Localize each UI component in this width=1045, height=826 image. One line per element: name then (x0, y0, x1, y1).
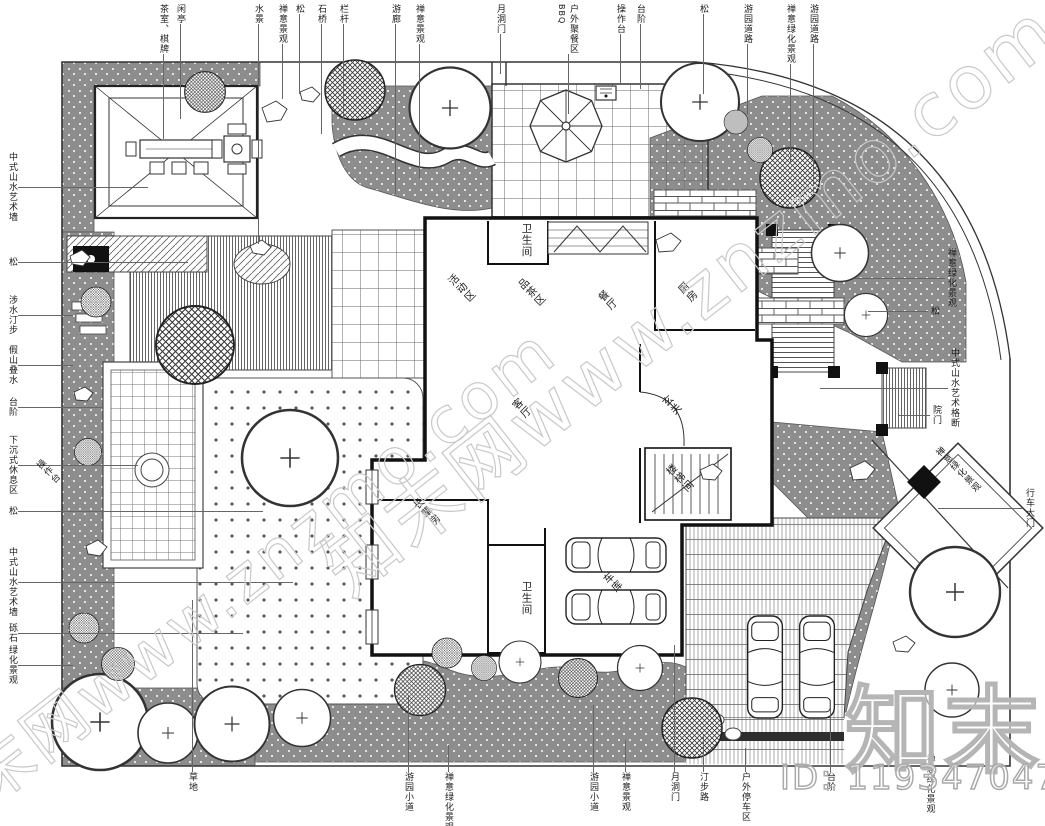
top-label-corridor: 游廊 (389, 4, 401, 194)
top-label-zen2: 禅意景观 (413, 4, 425, 179)
top-label-railing: 栏杆 (337, 4, 349, 119)
top-label-stone-bridge: 石桥 (315, 4, 327, 134)
landscape-plan-sheet: 茶室、棋牌 闲亭 水景 禅意景观 松 石桥 栏杆 游廊 禅意景观 月洞门 BBQ… (0, 0, 1045, 826)
room-label-bath1: 卫生间 (520, 223, 535, 258)
bottom-label-path2: 游园小道 (587, 705, 599, 812)
room-label-bath2: 卫生间 (520, 581, 535, 616)
right-label-zen-green-corner: 禅意绿化景观 (924, 754, 937, 814)
top-label-garden-road: 游园道路 (741, 4, 753, 114)
bottom-label-parking: 户外停车区 (739, 748, 751, 822)
right-label-drive-gate: 行车大门 (938, 488, 1035, 528)
left-label-steps: 台阶 (6, 397, 103, 417)
bottom-label-zen: 禅意景观 (619, 740, 631, 812)
top-label-pine: 松 (293, 4, 305, 94)
left-label-pine: 松 (6, 257, 188, 267)
top-label-zen: 禅意景观 (276, 4, 288, 99)
bottom-label-lawn: 草地 (186, 600, 198, 792)
left-label-water-steps: 涉水汀步 (6, 295, 73, 335)
left-label-rockery: 假山叠水 (6, 345, 73, 385)
bottom-label-zen-green: 禅意绿化景观 (442, 745, 454, 826)
right-label-zen-green: 禅意绿化景观 (855, 248, 957, 308)
left-label-greenery: 绿化景观 (6, 645, 73, 685)
top-label-zen-green: 禅意绿化景观 (784, 4, 796, 164)
right-label-courtyard-door: 院门 (898, 405, 942, 425)
top-label-steps: 台阶 (634, 4, 646, 89)
top-label-counter: 操作台 (614, 4, 626, 84)
top-label-water: 水景 (252, 4, 264, 244)
top-label-pavilion: 闲亭 (174, 4, 186, 119)
top-label-bbq: BBQ 户外聚餐区 (557, 4, 579, 114)
top-label-moon-gate: 月洞门 (494, 4, 506, 74)
windows (366, 470, 378, 644)
top-label-teahouse: 茶室、棋牌 (157, 4, 169, 139)
square-table (224, 136, 250, 162)
bottom-label-stepping-path: 汀步路 (697, 735, 709, 802)
left-label-gravel: 砾石 (6, 623, 243, 643)
right-label-pine: 松 (868, 306, 940, 316)
bbq-grill (596, 86, 616, 100)
top-label-garden-road2: 游园道路 (807, 4, 819, 194)
entry-stair (548, 222, 648, 254)
left-label-art-wall: 中式山水艺术墙 (6, 152, 148, 222)
tile-terrace (332, 230, 425, 378)
left-label-sunken-lounge: 下沉式休息区 (6, 435, 138, 495)
bottom-label-moon-gate: 月洞门 (668, 645, 680, 802)
top-label-pine2: 松 (697, 4, 709, 94)
left-label-pine2: 松 (6, 506, 263, 516)
left-label-art-wall2: 中式山水艺术墙 (6, 547, 293, 617)
bottom-label-steps: 台阶 (824, 700, 836, 792)
bottom-label-path: 游园小道 (402, 695, 414, 812)
